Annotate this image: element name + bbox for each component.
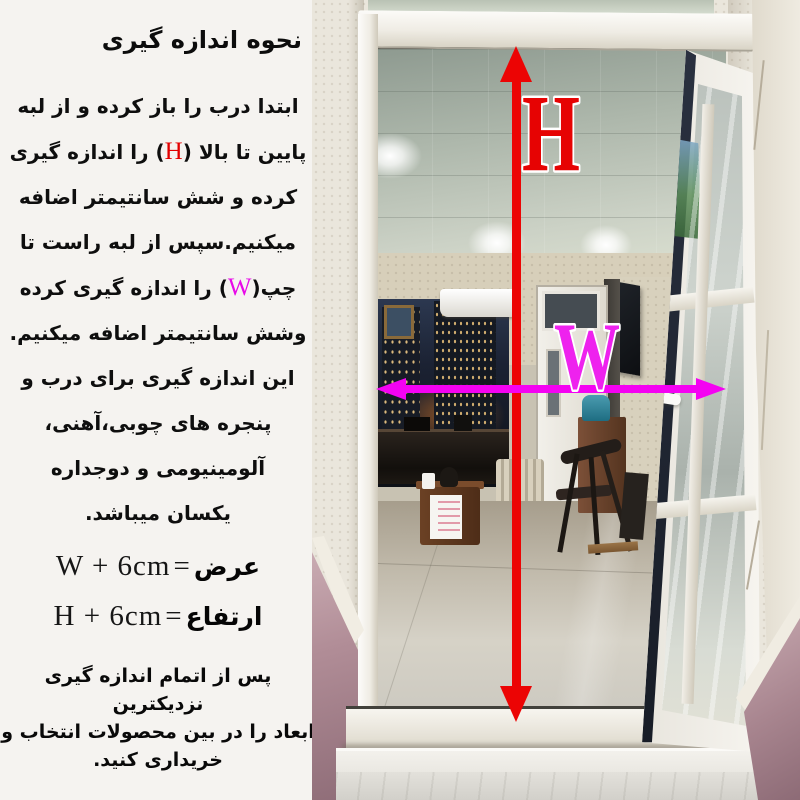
equals-sign: = (174, 550, 191, 583)
height-arrowhead-bottom (500, 686, 532, 722)
marble-step-face (336, 772, 772, 800)
height-label: H (518, 84, 628, 184)
purchase-note-line-3: خریداری کنید. (0, 746, 316, 774)
measurement-instructions: ابتدا درب را باز کرده و از لبه پایین تا … (0, 84, 316, 536)
framed-picture (384, 305, 414, 339)
height-letter: H (522, 72, 580, 194)
instruction-text: ) را اندازه گیری (10, 140, 165, 164)
instruction-line-7: این اندازه گیری برای درب و (0, 356, 316, 401)
calendar (430, 495, 462, 539)
instruction-line-8: پنجره های چوبی،آهنی، (0, 401, 316, 446)
width-arrowhead-right (696, 378, 726, 400)
width-letter: W (554, 303, 620, 409)
instruction-text: یکسان میباشد. (85, 501, 231, 525)
width-label: W (552, 312, 652, 398)
height-formula: H + 6cm = ارتفاع (0, 600, 316, 633)
instruction-text: پنجره های چوبی،آهنی، (45, 411, 272, 435)
door-frame-left-post (358, 14, 378, 750)
height-expression: H + 6cm (54, 600, 163, 633)
width-symbol-inline: W (228, 274, 252, 301)
purchase-note-line-1: پس از اتمام اندازه گیری نزدیکترین (0, 662, 316, 718)
instruction-line-6: وشش سانتیمتر اضافه میکنیم. (0, 311, 316, 356)
width-label-fa: عرض (194, 552, 260, 581)
instruction-line-4: میکنیم.سپس از لبه راست تا (0, 220, 316, 265)
mug (422, 473, 435, 489)
instruction-text: کرده و شش سانتیمتر اضافه (19, 185, 297, 209)
desk-item (404, 417, 430, 431)
desk-item (454, 415, 472, 431)
air-conditioner (440, 289, 518, 317)
kettle (440, 467, 458, 487)
equals-sign: = (165, 600, 182, 633)
door-photo: H W (312, 0, 800, 800)
instruction-line-3: کرده و شش سانتیمتر اضافه (0, 175, 316, 220)
purchase-note-line-2: ابعاد را در بین محصولات انتخاب و (0, 718, 316, 746)
instruction-text: آلومینیومی و دوجداره (51, 456, 265, 480)
page-title: نحوه اندازه گیری (102, 26, 302, 54)
instruction-text: چپ( (252, 276, 297, 300)
instruction-line-5: چپ(W) را اندازه گیری کرده (0, 265, 316, 311)
instruction-text: این اندازه گیری برای درب و (21, 366, 294, 390)
instruction-text: ابتدا درب را باز کرده و از لبه (17, 94, 298, 118)
instruction-text: پایین تا بالا ( (183, 140, 307, 164)
height-symbol-inline: H (165, 138, 183, 165)
instruction-text: ) را اندازه گیری کرده (20, 276, 228, 300)
instruction-line-2: پایین تا بالا (H) را اندازه گیری (0, 129, 316, 175)
width-arrowhead-left (376, 378, 406, 400)
wooden-cabinet (578, 417, 626, 513)
purchase-note: پس از اتمام اندازه گیری نزدیکترین ابعاد … (0, 662, 316, 774)
width-formula: W + 6cm = عرض (0, 550, 316, 583)
instruction-text-column: نحوه اندازه گیری ابتدا درب را باز کرده و… (0, 0, 316, 800)
instruction-text: وشش سانتیمتر اضافه میکنیم. (10, 321, 307, 345)
instruction-line-9: آلومینیومی و دوجداره (0, 446, 316, 491)
height-label-fa: ارتفاع (186, 602, 263, 631)
door-frame-top-bar (358, 10, 754, 51)
width-expression: W + 6cm (56, 550, 171, 583)
instruction-line-10: یکسان میباشد. (0, 491, 316, 536)
instruction-line-1: ابتدا درب را باز کرده و از لبه (0, 84, 316, 129)
measuring-instruction-graphic: نحوه اندازه گیری ابتدا درب را باز کرده و… (0, 0, 800, 800)
instruction-text: میکنیم.سپس از لبه راست تا (20, 230, 296, 254)
width-arrow (402, 385, 700, 393)
